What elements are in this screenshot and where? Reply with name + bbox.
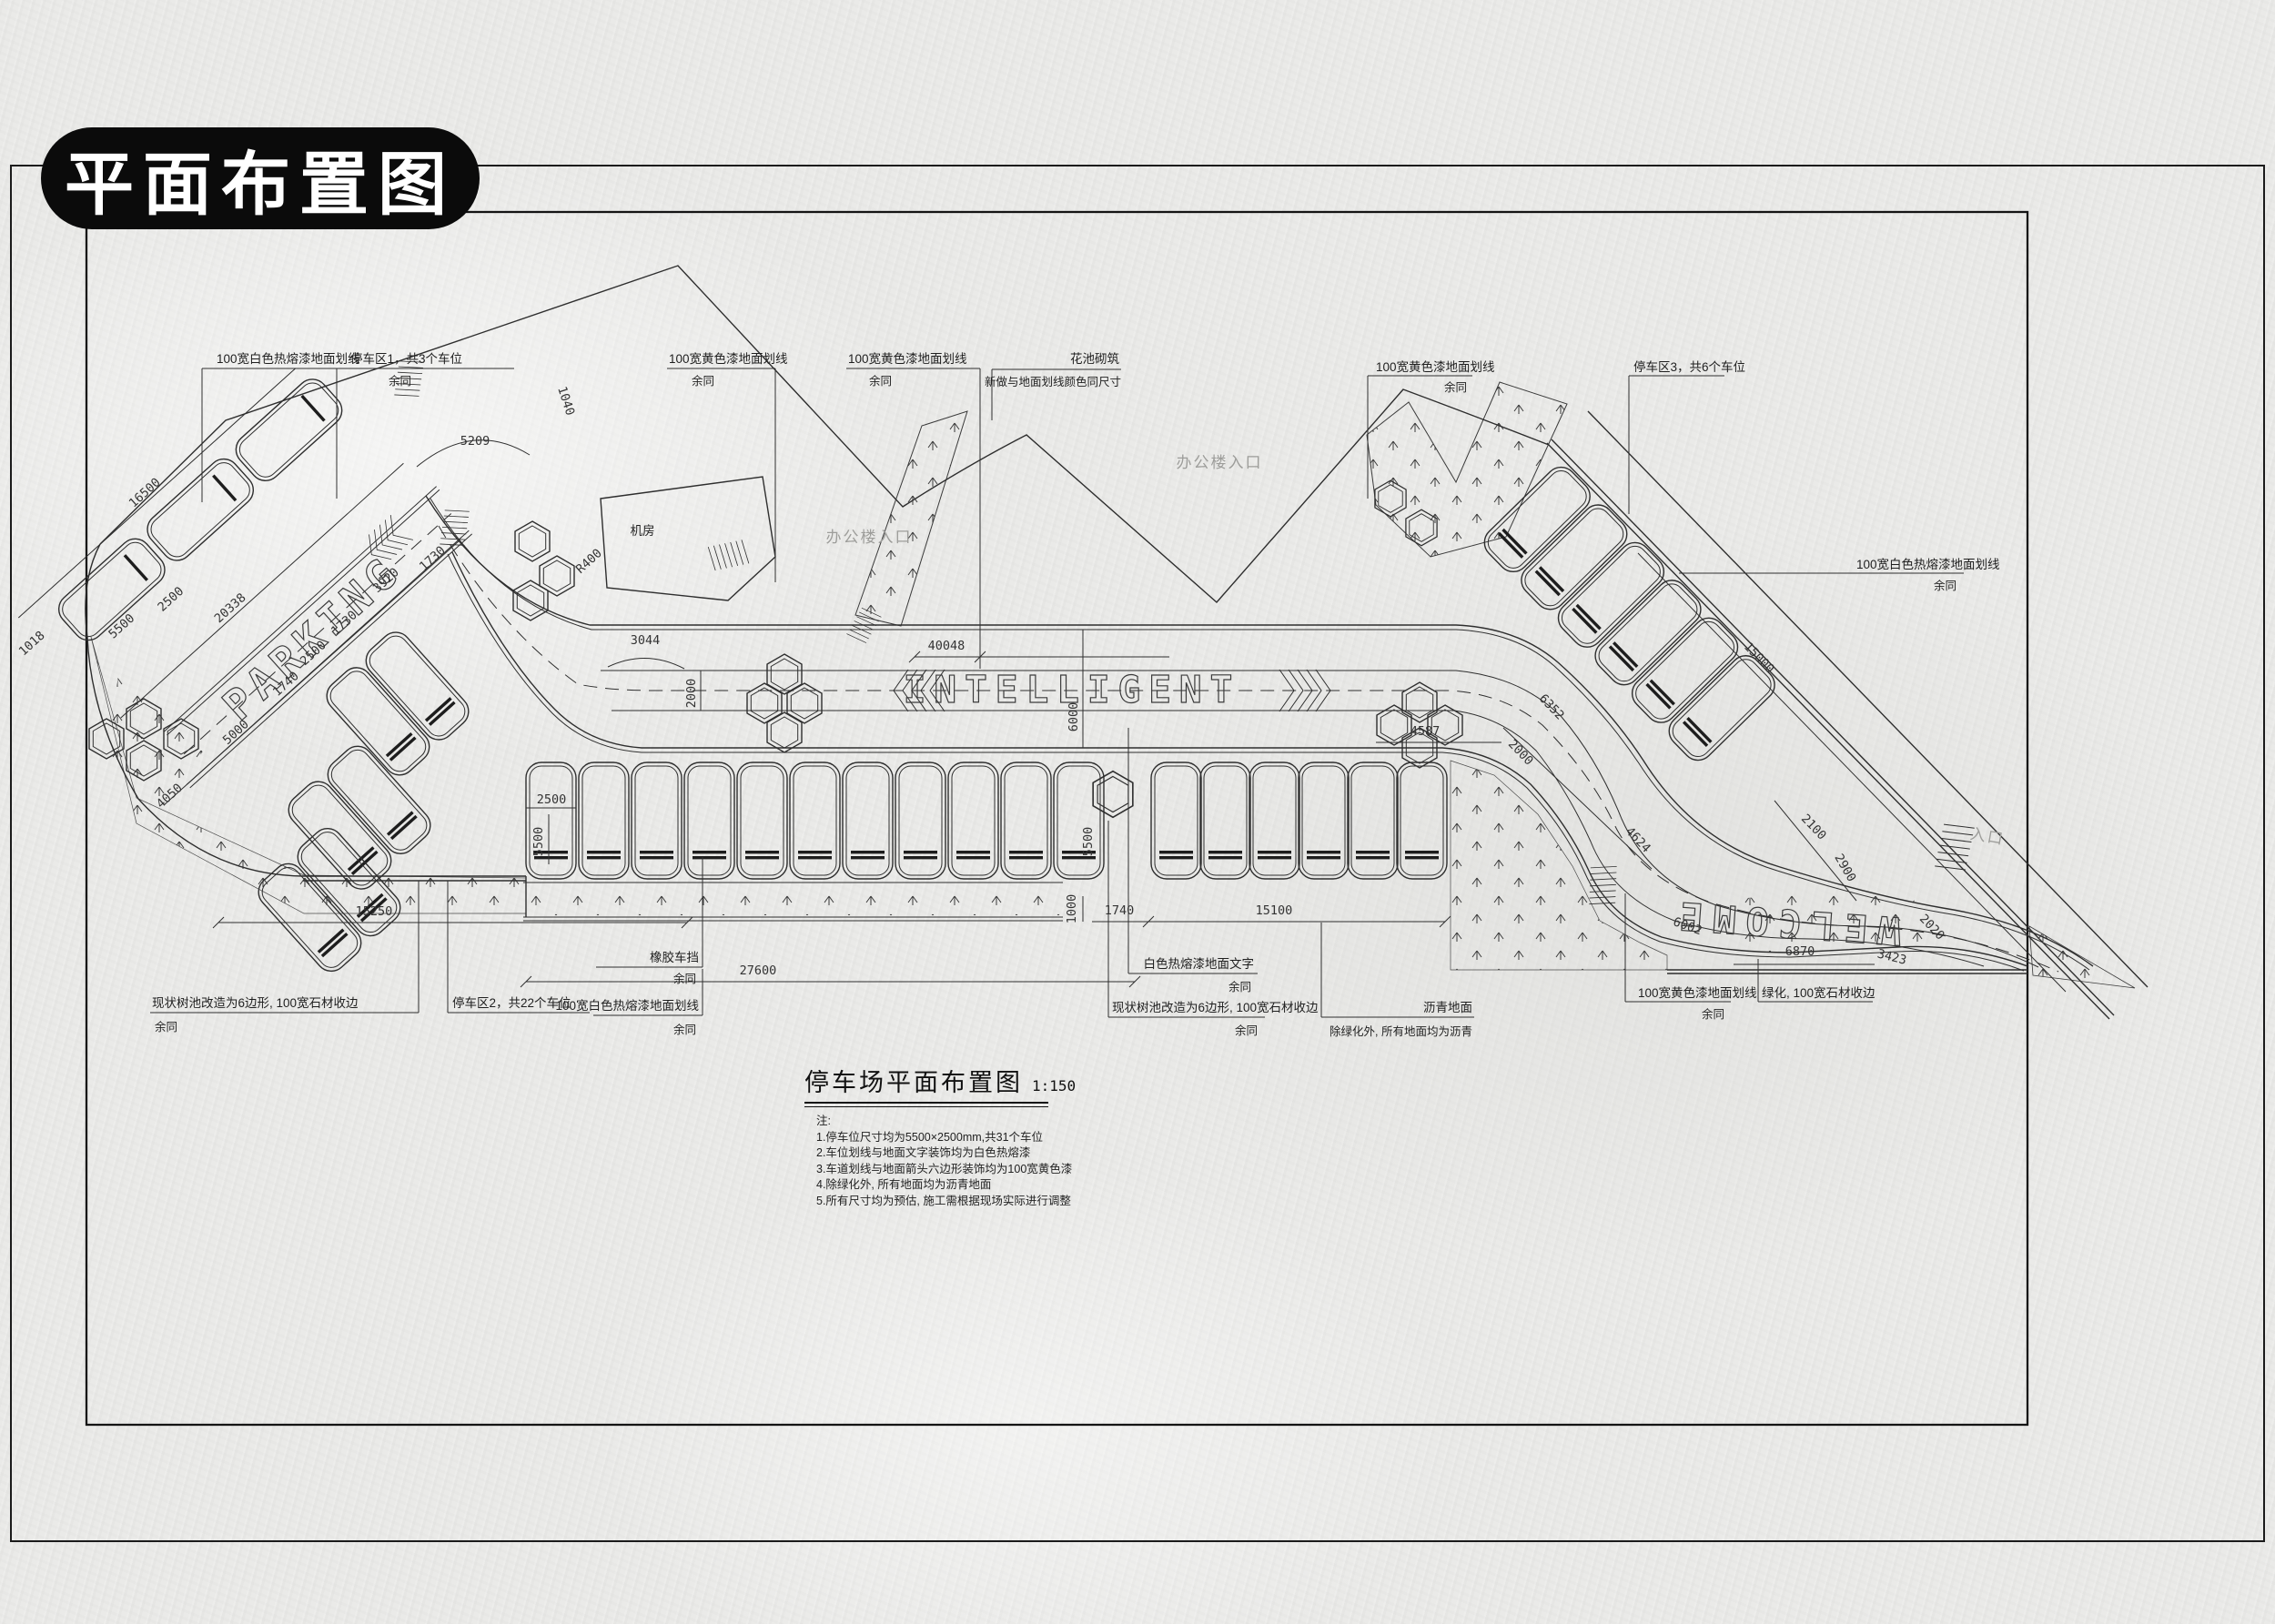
svg-text:余同: 余同 bbox=[692, 374, 714, 388]
building: 机房 bbox=[601, 477, 775, 600]
road-text-parking: PARKING bbox=[213, 546, 410, 731]
svg-text:27600: 27600 bbox=[740, 963, 777, 978]
svg-text:100宽白色热熔漆地面划线: 100宽白色热熔漆地面划线 bbox=[217, 351, 360, 366]
svg-text:新做与地面划线颜色同尺寸: 新做与地面划线颜色同尺寸 bbox=[985, 375, 1121, 388]
stall-row-middle bbox=[526, 762, 1447, 879]
parking-stall bbox=[229, 373, 348, 487]
svg-text:余同: 余同 bbox=[869, 374, 892, 388]
svg-text:6870: 6870 bbox=[1785, 944, 1815, 959]
svg-text:余同: 余同 bbox=[673, 972, 696, 985]
dim: 20338 bbox=[212, 590, 249, 626]
svg-text:停车区2，共22个车位: 停车区2，共22个车位 bbox=[452, 995, 571, 1010]
svg-text:5209: 5209 bbox=[460, 434, 490, 449]
svg-text:现状树池改造为6边形, 100宽石材收边: 现状树池改造为6边形, 100宽石材收边 bbox=[152, 995, 359, 1010]
note-item: 1.停车位尺寸均为5500×2500mm,共31个车位 bbox=[816, 1130, 1072, 1146]
svg-text:余同: 余同 bbox=[673, 1023, 696, 1036]
title-underline bbox=[804, 1102, 1048, 1107]
svg-text:余同: 余同 bbox=[389, 374, 411, 388]
svg-text:40048: 40048 bbox=[928, 639, 966, 653]
sheet-title: 平面布置图 bbox=[65, 128, 456, 228]
svg-text:2000: 2000 bbox=[1505, 737, 1536, 769]
dim: 16500 bbox=[126, 475, 164, 510]
svg-text:4624: 4624 bbox=[1623, 824, 1653, 856]
drawing-title: 停车场平面布置图 bbox=[804, 1069, 1023, 1096]
site-edge-right bbox=[1667, 970, 2027, 973]
stall-row-right bbox=[1478, 461, 1781, 767]
dim: 2500 bbox=[155, 584, 187, 615]
note-item: 2.车位划线与地面文字装饰均为白色热熔漆 bbox=[816, 1145, 1072, 1162]
svg-text:100宽黄色漆地面划线: 100宽黄色漆地面划线 bbox=[669, 351, 788, 366]
svg-text:余同: 余同 bbox=[155, 1020, 177, 1034]
svg-text:15000: 15000 bbox=[1741, 640, 1777, 676]
svg-text:余同: 余同 bbox=[1934, 579, 1956, 592]
svg-text:15250: 15250 bbox=[356, 904, 393, 919]
svg-text:白色热熔漆地面文字: 白色热熔漆地面文字 bbox=[1144, 956, 1255, 971]
svg-text:3044: 3044 bbox=[631, 633, 661, 648]
svg-text:100宽白色热熔漆地面划线: 100宽白色热熔漆地面划线 bbox=[555, 998, 699, 1013]
svg-text:1000: 1000 bbox=[1065, 894, 1079, 924]
svg-text:花池砌筑: 花池砌筑 bbox=[1070, 352, 1119, 366]
svg-text:4587: 4587 bbox=[1410, 724, 1441, 739]
svg-text:2900: 2900 bbox=[1831, 852, 1858, 884]
svg-text:100宽黄色漆地面划线: 100宽黄色漆地面划线 bbox=[1638, 985, 1757, 1000]
svg-text:余同: 余同 bbox=[1444, 380, 1467, 394]
notes-block: 注: 1.停车位尺寸均为5500×2500mm,共31个车位 2.车位划线与地面… bbox=[816, 1114, 1072, 1209]
svg-text:沥青地面: 沥青地面 bbox=[1423, 1001, 1472, 1014]
svg-text:余同: 余同 bbox=[1702, 1007, 1724, 1021]
notes-label: 注: bbox=[816, 1114, 1072, 1130]
svg-text:2100: 2100 bbox=[1798, 812, 1829, 843]
svg-text:R400: R400 bbox=[573, 546, 605, 577]
svg-text:2000: 2000 bbox=[684, 679, 699, 709]
outer-border bbox=[11, 166, 2264, 1541]
svg-text:6000: 6000 bbox=[1067, 702, 1081, 732]
note-item: 4.除绿化外, 所有地面均为沥青地面 bbox=[816, 1177, 1072, 1194]
note-item: 3.车道划线与地面箭头六边形装饰均为100宽黄色漆 bbox=[816, 1162, 1072, 1178]
drawing-scale: 1:150 bbox=[1032, 1077, 1076, 1094]
svg-text:余同: 余同 bbox=[1228, 980, 1251, 994]
entrance-label: 入口 bbox=[1969, 825, 2007, 848]
dim: 5500 bbox=[106, 611, 137, 642]
exit-louver bbox=[1918, 811, 1992, 883]
note-item: 5.所有尺寸均为预估, 施工需根据现场实际进行调整 bbox=[816, 1194, 1072, 1210]
svg-text:3423: 3423 bbox=[1876, 946, 1907, 967]
entrance-label: 办公楼入口 bbox=[826, 529, 913, 546]
svg-text:5500: 5500 bbox=[1081, 827, 1096, 857]
building-label: 机房 bbox=[631, 524, 655, 538]
plan-drawing: PARKING 20338 16500 5500 2500 1018 bbox=[0, 0, 2275, 1624]
svg-text:2500: 2500 bbox=[537, 792, 567, 807]
entrance-label: 办公楼入口 bbox=[1177, 454, 1263, 471]
svg-text:1040: 1040 bbox=[554, 385, 577, 418]
svg-text:5500: 5500 bbox=[531, 827, 546, 857]
svg-text:停车区1，共3个车位: 停车区1，共3个车位 bbox=[350, 351, 462, 366]
title-block: 停车场平面布置图1:150 bbox=[804, 1063, 1076, 1107]
sheet-title-badge: 平面布置图 bbox=[41, 127, 480, 229]
parking-stall bbox=[141, 453, 259, 567]
svg-text:橡胶车挡: 橡胶车挡 bbox=[650, 950, 699, 964]
svg-text:绿化, 100宽石材收边: 绿化, 100宽石材收边 bbox=[1762, 985, 1876, 1000]
svg-text:除绿化外, 所有地面均为沥青: 除绿化外, 所有地面均为沥青 bbox=[1330, 1024, 1472, 1038]
svg-text:停车区3，共6个车位: 停车区3，共6个车位 bbox=[1633, 359, 1745, 374]
svg-text:1740: 1740 bbox=[1105, 903, 1135, 918]
svg-text:100宽黄色漆地面划线: 100宽黄色漆地面划线 bbox=[1376, 359, 1495, 374]
svg-text:现状树池改造为6边形, 100宽石材收边: 现状树池改造为6边形, 100宽石材收边 bbox=[1112, 1000, 1319, 1014]
dim: 1018 bbox=[16, 629, 48, 660]
drawing-sheet: 平面布置图 bbox=[0, 0, 2275, 1624]
svg-text:100宽黄色漆地面划线: 100宽黄色漆地面划线 bbox=[848, 351, 967, 366]
svg-text:15100: 15100 bbox=[1256, 903, 1293, 918]
svg-text:100宽白色热熔漆地面划线: 100宽白色热熔漆地面划线 bbox=[1856, 557, 2000, 571]
svg-text:余同: 余同 bbox=[1235, 1024, 1258, 1037]
